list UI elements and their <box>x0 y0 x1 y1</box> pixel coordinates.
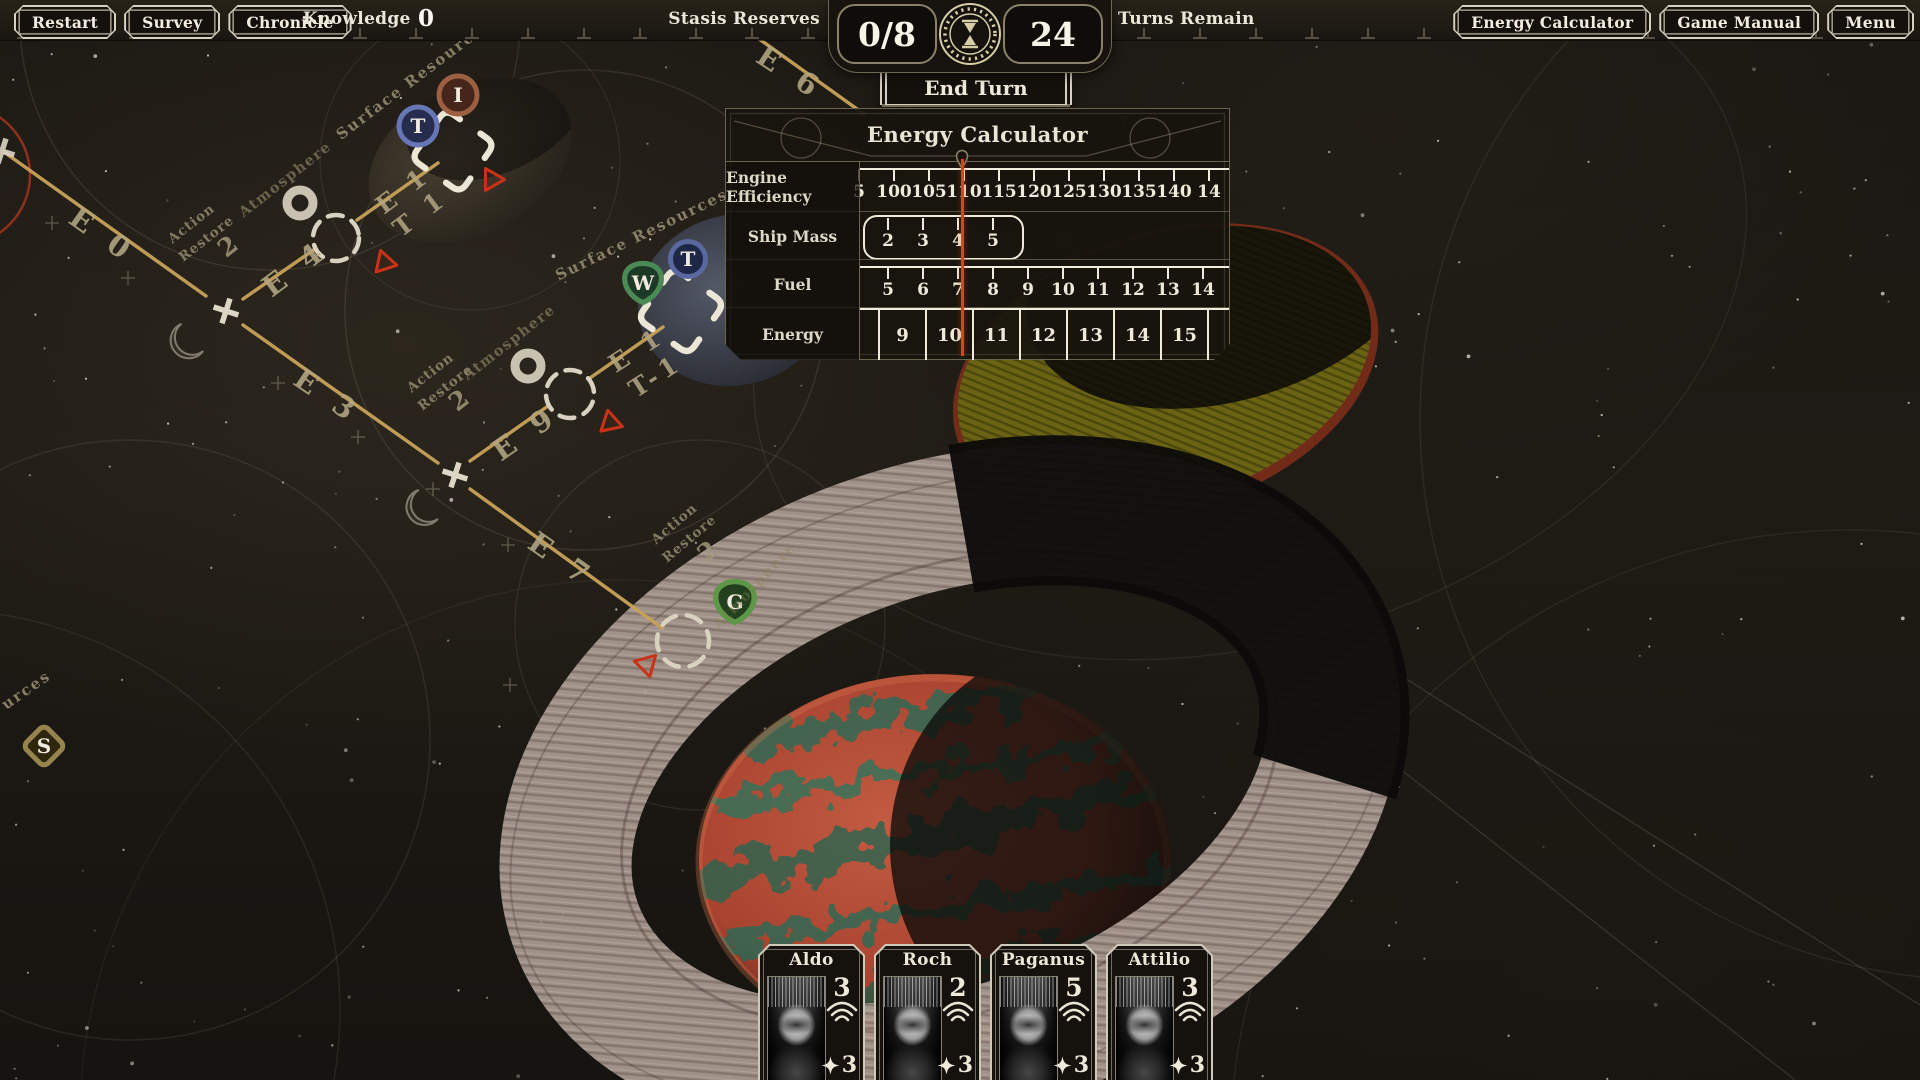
crew-portrait <box>883 976 942 1080</box>
signal-arcs-icon <box>1174 1000 1206 1022</box>
svg-text:E 6: E 6 <box>750 38 830 106</box>
crew-name: Paganus <box>992 950 1095 970</box>
calculator-indicator-line <box>961 159 964 356</box>
star-stat: 3 <box>1169 1052 1205 1078</box>
energy-cell: 13 <box>1066 310 1113 360</box>
scale-tick: 8 <box>976 267 1011 300</box>
waypoint-cross-1 <box>210 295 243 328</box>
knowledge-value: 0 <box>418 5 434 32</box>
scale-tick: 3 <box>906 218 941 251</box>
crew-name: Attilio <box>1108 950 1211 970</box>
scale-tick: 100 <box>877 169 912 202</box>
scale-tick: 6 <box>906 267 941 300</box>
crew-card[interactable]: Paganus 5 3 <box>990 944 1097 1080</box>
svg-text:W: W <box>631 271 655 295</box>
crew-name: Roch <box>876 950 979 970</box>
turns-remain-label: Turns Remain <box>1118 9 1255 29</box>
star-stat: 3 <box>821 1052 857 1078</box>
svg-text:I: I <box>453 83 462 107</box>
scale-tick: 120 <box>1017 169 1052 202</box>
scale-tick: 13 <box>1151 267 1186 300</box>
star-stat: 3 <box>937 1052 973 1078</box>
four-pointed-star-icon <box>821 1056 840 1075</box>
signal-arcs-icon <box>1058 1000 1090 1022</box>
top-bar-button[interactable]: Energy Calculator <box>1453 5 1651 39</box>
scale-tick: 105 <box>912 169 947 202</box>
knowledge-label: Knowledge <box>303 9 411 29</box>
badge-w-green: W <box>625 263 662 302</box>
row-label-mass: Ship Mass <box>726 212 860 260</box>
scale-tick: 2 <box>871 218 906 251</box>
svg-text:E 0: E 0 <box>63 200 143 270</box>
four-pointed-star-icon <box>937 1056 956 1075</box>
scale-tick: 7 <box>941 267 976 300</box>
badge-t-blue: T <box>399 107 437 145</box>
star-stat: 3 <box>1053 1052 1089 1078</box>
engine-efficiency-scale[interactable]: 510010511011512012513013514014 <box>842 169 1227 202</box>
row-label-fuel: Fuel <box>726 260 860 308</box>
panel-title: Energy Calculator <box>726 109 1229 162</box>
scale-tick: 130 <box>1087 169 1122 202</box>
scale-tick: 5 <box>871 267 906 300</box>
energy-cell: 10 <box>925 310 972 360</box>
node-ring-1 <box>287 190 313 216</box>
scale-tick: 10 <box>1046 267 1081 300</box>
turns-remain-value: 24 <box>1003 4 1103 64</box>
red-orbit-arc <box>0 105 30 245</box>
row-label-energy: Energy <box>726 308 860 360</box>
waypoint-cross-edge <box>0 135 18 168</box>
turn-cluster: 0/8 24 <box>828 0 1112 73</box>
scale-tick: 5 <box>976 218 1011 251</box>
scale-tick: 11 <box>1081 267 1116 300</box>
signal-stat: 3 <box>825 976 859 1026</box>
badge-i-brown: I <box>439 76 477 114</box>
scale-tick: 110 <box>947 169 982 202</box>
energy-cell: 9 <box>878 310 925 360</box>
stasis-reserves-label: Stasis Reserves <box>668 9 820 29</box>
signal-stat: 3 <box>1173 976 1207 1026</box>
stasis-reserves-value: 0/8 <box>837 4 937 64</box>
energy-row: 9101112131415 Energy <box>726 307 1229 360</box>
four-pointed-star-icon <box>1169 1056 1188 1075</box>
game-screen: T I W T G S E 0 E 3 E 4 E 9 E 7 E 6 E 1 … <box>0 0 1920 1080</box>
top-bar-button[interactable]: Restart <box>14 5 116 39</box>
signal-stat: 2 <box>941 976 975 1026</box>
left-button-group: RestartSurveyChronicle <box>14 5 352 39</box>
ship-mass-row: 2345 Ship Mass <box>726 211 1229 260</box>
ship-mass-scale[interactable]: 2345 <box>871 218 1011 251</box>
svg-text:S: S <box>37 734 51 758</box>
scale-tick: 14 <box>1186 267 1221 300</box>
svg-text:E 4: E 4 <box>255 232 334 303</box>
scale-tick: 12 <box>1116 267 1151 300</box>
crew-portrait <box>999 976 1058 1080</box>
scale-tick: 140 <box>1157 169 1192 202</box>
end-turn-button[interactable]: End Turn <box>880 71 1072 105</box>
crew-portrait <box>767 976 826 1080</box>
scale-tick: 14 <box>1192 169 1227 202</box>
crew-card[interactable]: Aldo 3 3 <box>758 944 865 1080</box>
energy-cell: 14 <box>1113 310 1160 360</box>
waypoint-cross-2 <box>439 459 472 492</box>
scale-tick: 135 <box>1122 169 1157 202</box>
svg-text:E 7: E 7 <box>522 525 602 595</box>
top-bar-button[interactable]: Survey <box>124 5 220 39</box>
fuel-row: 567891011121314 Fuel <box>726 259 1229 308</box>
energy-cell: 15 <box>1160 310 1209 360</box>
crew-portrait <box>1115 976 1174 1080</box>
top-bar-button[interactable]: Menu <box>1827 5 1914 39</box>
planet-small-dark[interactable] <box>331 7 638 276</box>
energy-calculator-panel: Energy Calculator 5100105110115120125130… <box>725 108 1230 360</box>
badge-t-navy: T <box>671 242 706 277</box>
svg-text:T: T <box>411 114 426 138</box>
scale-tick: 9 <box>1011 267 1046 300</box>
four-pointed-star-icon <box>1053 1056 1072 1075</box>
engine-efficiency-row: 510010511011512012513013514014 Engine Ef… <box>726 161 1229 212</box>
hourglass-icon <box>935 0 1005 69</box>
crew-card-row: Aldo 3 3 Roch <box>758 944 1213 1080</box>
scale-tick: 115 <box>982 169 1017 202</box>
fuel-scale[interactable]: 567891011121314 <box>871 267 1221 300</box>
crew-card[interactable]: Roch 2 3 <box>874 944 981 1080</box>
svg-text:urces: urces <box>0 666 54 713</box>
moon-crescents <box>166 320 439 529</box>
crew-card[interactable]: Attilio 3 3 <box>1106 944 1213 1080</box>
energy-cell: 11 <box>972 310 1019 360</box>
signal-stat: 5 <box>1057 976 1091 1026</box>
svg-text:E 3: E 3 <box>288 361 368 430</box>
row-label-engine: Engine Efficiency <box>726 162 860 212</box>
top-bar-button[interactable]: Game Manual <box>1659 5 1819 39</box>
scale-tick: 4 <box>941 218 976 251</box>
energy-output-cells: 9101112131415 <box>878 310 1209 360</box>
badge-s-gold: S <box>23 725 65 767</box>
signal-arcs-icon <box>826 1000 858 1022</box>
right-button-group: Energy CalculatorGame ManualMenu <box>1453 5 1914 39</box>
scale-tick: 125 <box>1052 169 1087 202</box>
energy-cell: 12 <box>1019 310 1066 360</box>
svg-text:T: T <box>681 247 696 271</box>
node-ring-2 <box>515 353 541 379</box>
signal-arcs-icon <box>942 1000 974 1022</box>
crew-name: Aldo <box>760 950 863 970</box>
